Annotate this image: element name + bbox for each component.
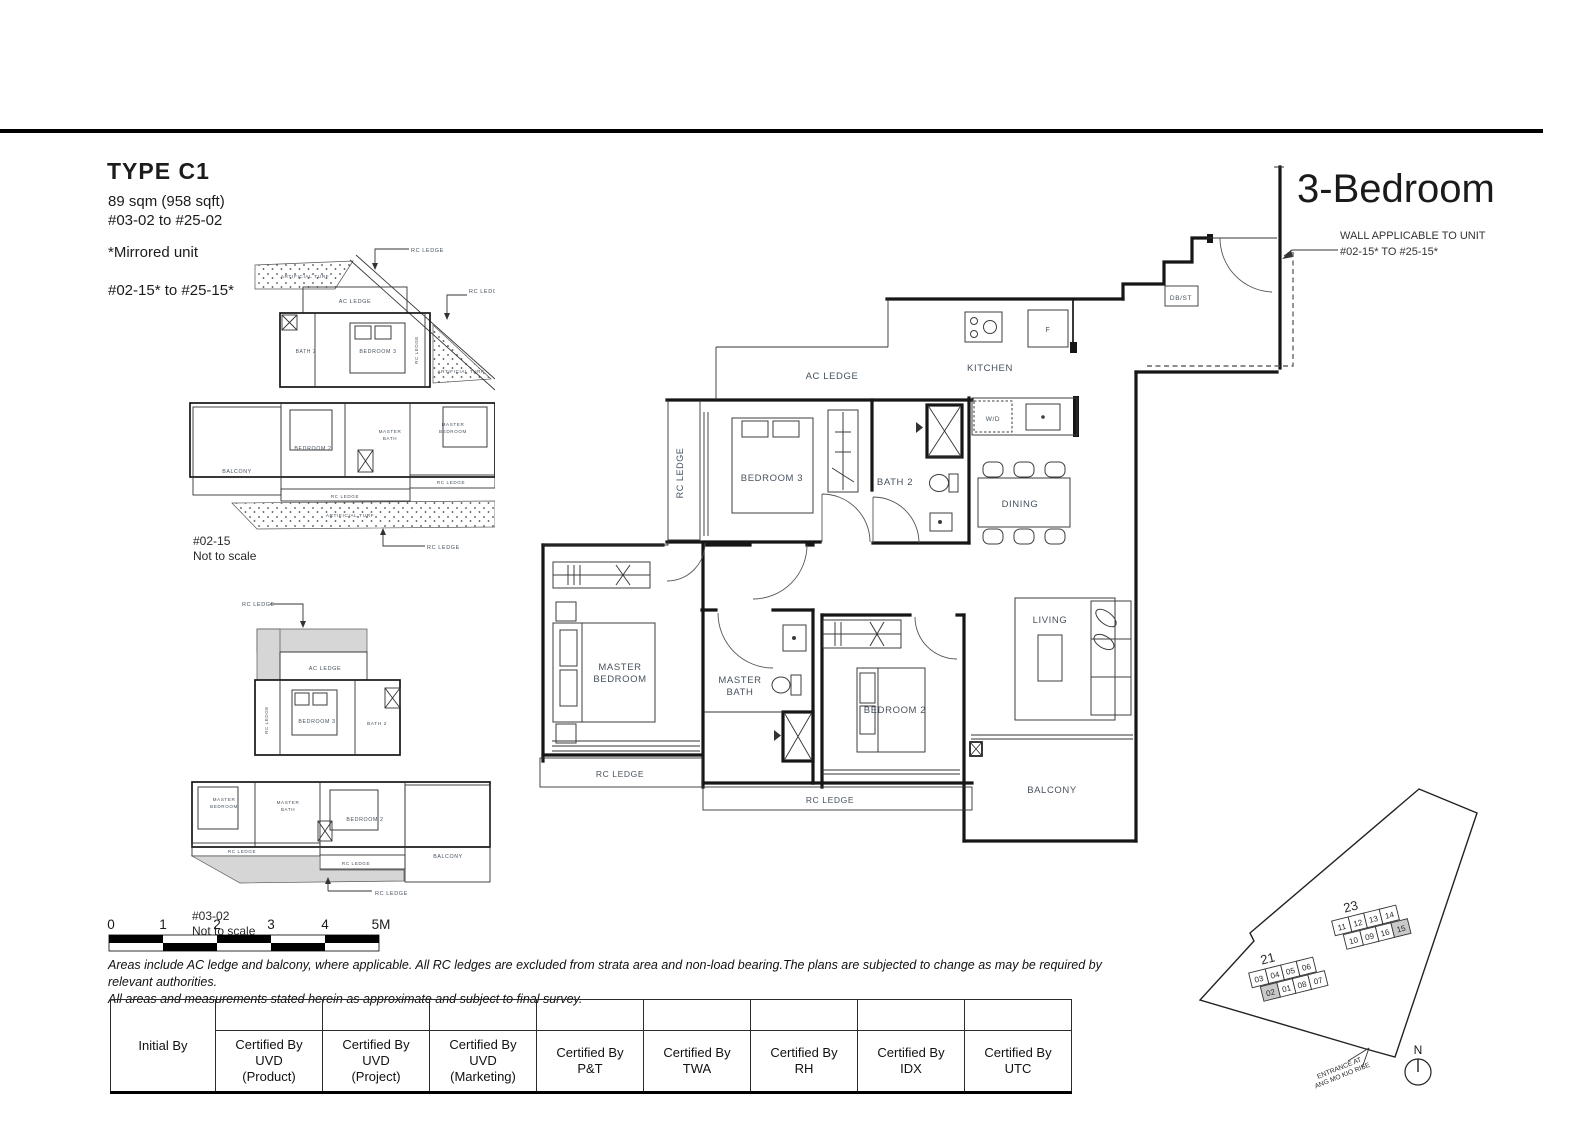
a-caption: #02-15 xyxy=(193,534,231,548)
unit-range: #03-02 to #25-02 xyxy=(108,212,222,229)
disclaimer-line1: Areas include AC ledge and balcony, wher… xyxy=(108,957,1118,991)
floorplan-page: { "page": { "header": { "type_title": "T… xyxy=(0,0,1590,1123)
a-mbed-1: MASTER xyxy=(442,422,465,427)
cert-1-l1: Certified By xyxy=(326,1037,426,1053)
label-master-bath-1: MASTER xyxy=(718,675,761,686)
site-plan: 23 11 12 13 14 10 09 16 15 21 03 04 05 0… xyxy=(1180,765,1590,1120)
cell-empty xyxy=(323,1000,430,1031)
north-compass: N xyxy=(1405,1043,1431,1085)
label-ac-ledge: AC LEDGE xyxy=(806,371,859,382)
cell-certifier-2: Certified By UVD (Marketing) xyxy=(430,1031,537,1093)
cert-7-l1: Certified By xyxy=(968,1045,1068,1061)
keyplan-b-drawing xyxy=(192,604,490,891)
wall-note-line2: #02-15* TO #25-15* xyxy=(1340,246,1439,258)
label-bath2: BATH 2 xyxy=(877,477,913,488)
b-rc-ledge-v: RC LEDGE xyxy=(264,706,269,734)
cert-4-l1: Certified By xyxy=(647,1045,747,1061)
b-rc-ledge-top: RC LEDGE xyxy=(242,602,275,608)
label-master-bedroom-2: BEDROOM xyxy=(593,674,646,685)
a-mbath-2: BATH xyxy=(383,436,397,441)
a-bath2: BATH 2 xyxy=(296,349,317,355)
a-mbath-1: MASTER xyxy=(379,429,402,434)
cert-1-l2: UVD xyxy=(326,1053,426,1069)
cell-certifier-4: Certified By TWA xyxy=(644,1031,751,1093)
cell-empty xyxy=(430,1000,537,1031)
keyplan-03-02: RC LEDGE AC LEDGE RC LEDGE BEDROOM 3 BAT… xyxy=(180,595,500,940)
b-bedroom3: BEDROOM 3 xyxy=(298,719,335,725)
a-turf-top: ARTIFICIAL TURF xyxy=(281,274,330,280)
cell-empty xyxy=(216,1000,323,1031)
b-balcony: BALCONY xyxy=(433,854,463,860)
a-rc-ledge-top: RC LEDGE xyxy=(411,248,444,254)
plan-title: 3-Bedroom xyxy=(1297,167,1495,211)
cert-3-l2: P&T xyxy=(540,1061,640,1077)
a-bedroom3: BEDROOM 3 xyxy=(359,349,396,355)
b-rc-ledge-low: RC LEDGE xyxy=(342,861,370,866)
scale-tick-0: 0 xyxy=(107,917,115,932)
label-fridge: F xyxy=(1046,327,1051,334)
block-23-label: 23 xyxy=(1342,898,1360,916)
cert-2-l2: UVD xyxy=(433,1053,533,1069)
b-mbed-1: MASTER xyxy=(213,797,236,802)
site-block-21: 21 03 04 05 06 02 01 08 07 xyxy=(1245,939,1328,1003)
a-balcony: BALCONY xyxy=(222,469,252,475)
wall-note-arrow xyxy=(1282,250,1293,259)
b-rc-ledge-bottom: RC LEDGE xyxy=(375,891,408,897)
b-bedroom2: BEDROOM 2 xyxy=(346,817,383,823)
label-master-bedroom-1: MASTER xyxy=(598,662,641,673)
b-bath2: BATH 2 xyxy=(367,721,387,727)
label-bedroom2: BEDROOM 2 xyxy=(864,705,926,716)
main-floorplan: 3-Bedroom WALL APPLICABLE TO UNIT #02-15… xyxy=(520,140,1590,870)
cert-1-l3: (Project) xyxy=(326,1069,426,1085)
b-mbath-2: BATH xyxy=(281,807,295,812)
cert-7-l2: UTC xyxy=(968,1061,1068,1077)
cert-0-l1: Certified By xyxy=(219,1037,319,1053)
cert-0-l2: UVD xyxy=(219,1053,319,1069)
label-rc-ledge-bottomleft: RC LEDGE xyxy=(596,769,644,779)
scale-tick-2: 2 xyxy=(213,917,221,932)
north-label: N xyxy=(1414,1043,1423,1057)
a-bedroom2: BEDROOM 2 xyxy=(294,446,331,452)
label-db-st: DB/ST xyxy=(1170,295,1192,302)
label-dining: DINING xyxy=(1002,499,1039,510)
label-master-bath-2: BATH xyxy=(726,687,753,698)
a-rc-ledge-right: RC LEDGE xyxy=(469,289,495,295)
cell-certifier-5: Certified By RH xyxy=(751,1031,858,1093)
label-balcony: BALCONY xyxy=(1027,785,1077,796)
cert-0-l3: (Product) xyxy=(219,1069,319,1085)
cert-5-l1: Certified By xyxy=(754,1045,854,1061)
label-bedroom3: BEDROOM 3 xyxy=(741,473,803,484)
unit-type-title: TYPE C1 xyxy=(107,158,210,185)
a-mbed-2: BEDROOM xyxy=(439,429,467,434)
mirror-wall-dashed xyxy=(1147,252,1293,366)
cert-6-l1: Certified By xyxy=(861,1045,961,1061)
a-rc-ledge-bottom: RC LEDGE xyxy=(427,545,460,551)
scale-tick-3: 3 xyxy=(267,917,275,932)
cell-initial-by: Initial By xyxy=(111,1000,216,1093)
cell-empty xyxy=(965,1000,1072,1031)
cert-6-l2: IDX xyxy=(861,1061,961,1077)
wall-note-line1: WALL APPLICABLE TO UNIT xyxy=(1340,230,1486,242)
a-rc-ledge-low: RC LEDGE xyxy=(331,494,359,499)
top-divider-rule xyxy=(0,129,1543,133)
cell-empty xyxy=(858,1000,965,1031)
cert-4-l2: TWA xyxy=(647,1061,747,1077)
label-rc-ledge-vertical: RC LEDGE xyxy=(675,448,685,499)
approval-table: Initial By Certified By UVD (Product) Ce… xyxy=(110,999,1072,1094)
label-wd: W/D xyxy=(986,416,1000,423)
cell-certifier-6: Certified By IDX xyxy=(858,1031,965,1093)
cert-3-l1: Certified By xyxy=(540,1045,640,1061)
cell-certifier-7: Certified By UTC xyxy=(965,1031,1072,1093)
cell-empty xyxy=(751,1000,858,1031)
b-mbed-2: BEDROOM xyxy=(210,804,238,809)
main-walls xyxy=(540,167,1293,841)
cell-certifier-0: Certified By UVD (Product) xyxy=(216,1031,323,1093)
scale-bar: 0 1 2 3 4 5M xyxy=(103,916,393,961)
a-turf-right: ARTIFICIAL TURF xyxy=(438,369,485,374)
scale-tick-4: 4 xyxy=(321,917,329,932)
cert-5-l2: RH xyxy=(754,1061,854,1077)
b-ac-ledge: AC LEDGE xyxy=(309,666,342,672)
a-turf-bottom: ARTIFICIAL TURF xyxy=(326,513,375,519)
b-mbath-1: MASTER xyxy=(277,800,300,805)
a-ac-ledge: AC LEDGE xyxy=(339,299,372,305)
cell-certifier-3: Certified By P&T xyxy=(537,1031,644,1093)
scale-tick-5m: 5M xyxy=(372,917,391,932)
block-21-label: 21 xyxy=(1259,950,1277,968)
scale-tick-1: 1 xyxy=(159,917,167,932)
a-rc-ledge-v: RC LEDGE xyxy=(414,336,419,364)
site-block-23: 23 11 12 13 14 10 09 16 15 xyxy=(1328,887,1411,951)
unit-area: 89 sqm (958 sqft) xyxy=(108,193,225,210)
cert-2-l1: Certified By xyxy=(433,1037,533,1053)
label-rc-ledge-bottom: RC LEDGE xyxy=(806,795,854,805)
a-rc-ledge-mid: RC LEDGE xyxy=(437,480,465,485)
scale-bar-segments xyxy=(109,935,379,951)
cert-2-l3: (Marketing) xyxy=(433,1069,533,1085)
main-room-labels: AC LEDGE KITCHEN RC LEDGE BEDROOM 3 BATH… xyxy=(593,295,1192,805)
cell-empty xyxy=(537,1000,644,1031)
cell-empty xyxy=(644,1000,751,1031)
cell-certifier-1: Certified By UVD (Project) xyxy=(323,1031,430,1093)
a-scale-note: Not to scale xyxy=(193,549,257,563)
keyplan-02-15: RC LEDGE RC LEDGE ARTIFICIAL TURF AC LED… xyxy=(185,245,495,570)
label-living: LIVING xyxy=(1033,615,1068,626)
b-rc-ledge-mid: RC LEDGE xyxy=(228,849,256,854)
keyplan-a-drawing xyxy=(190,249,495,546)
label-kitchen: KITCHEN xyxy=(967,363,1013,374)
